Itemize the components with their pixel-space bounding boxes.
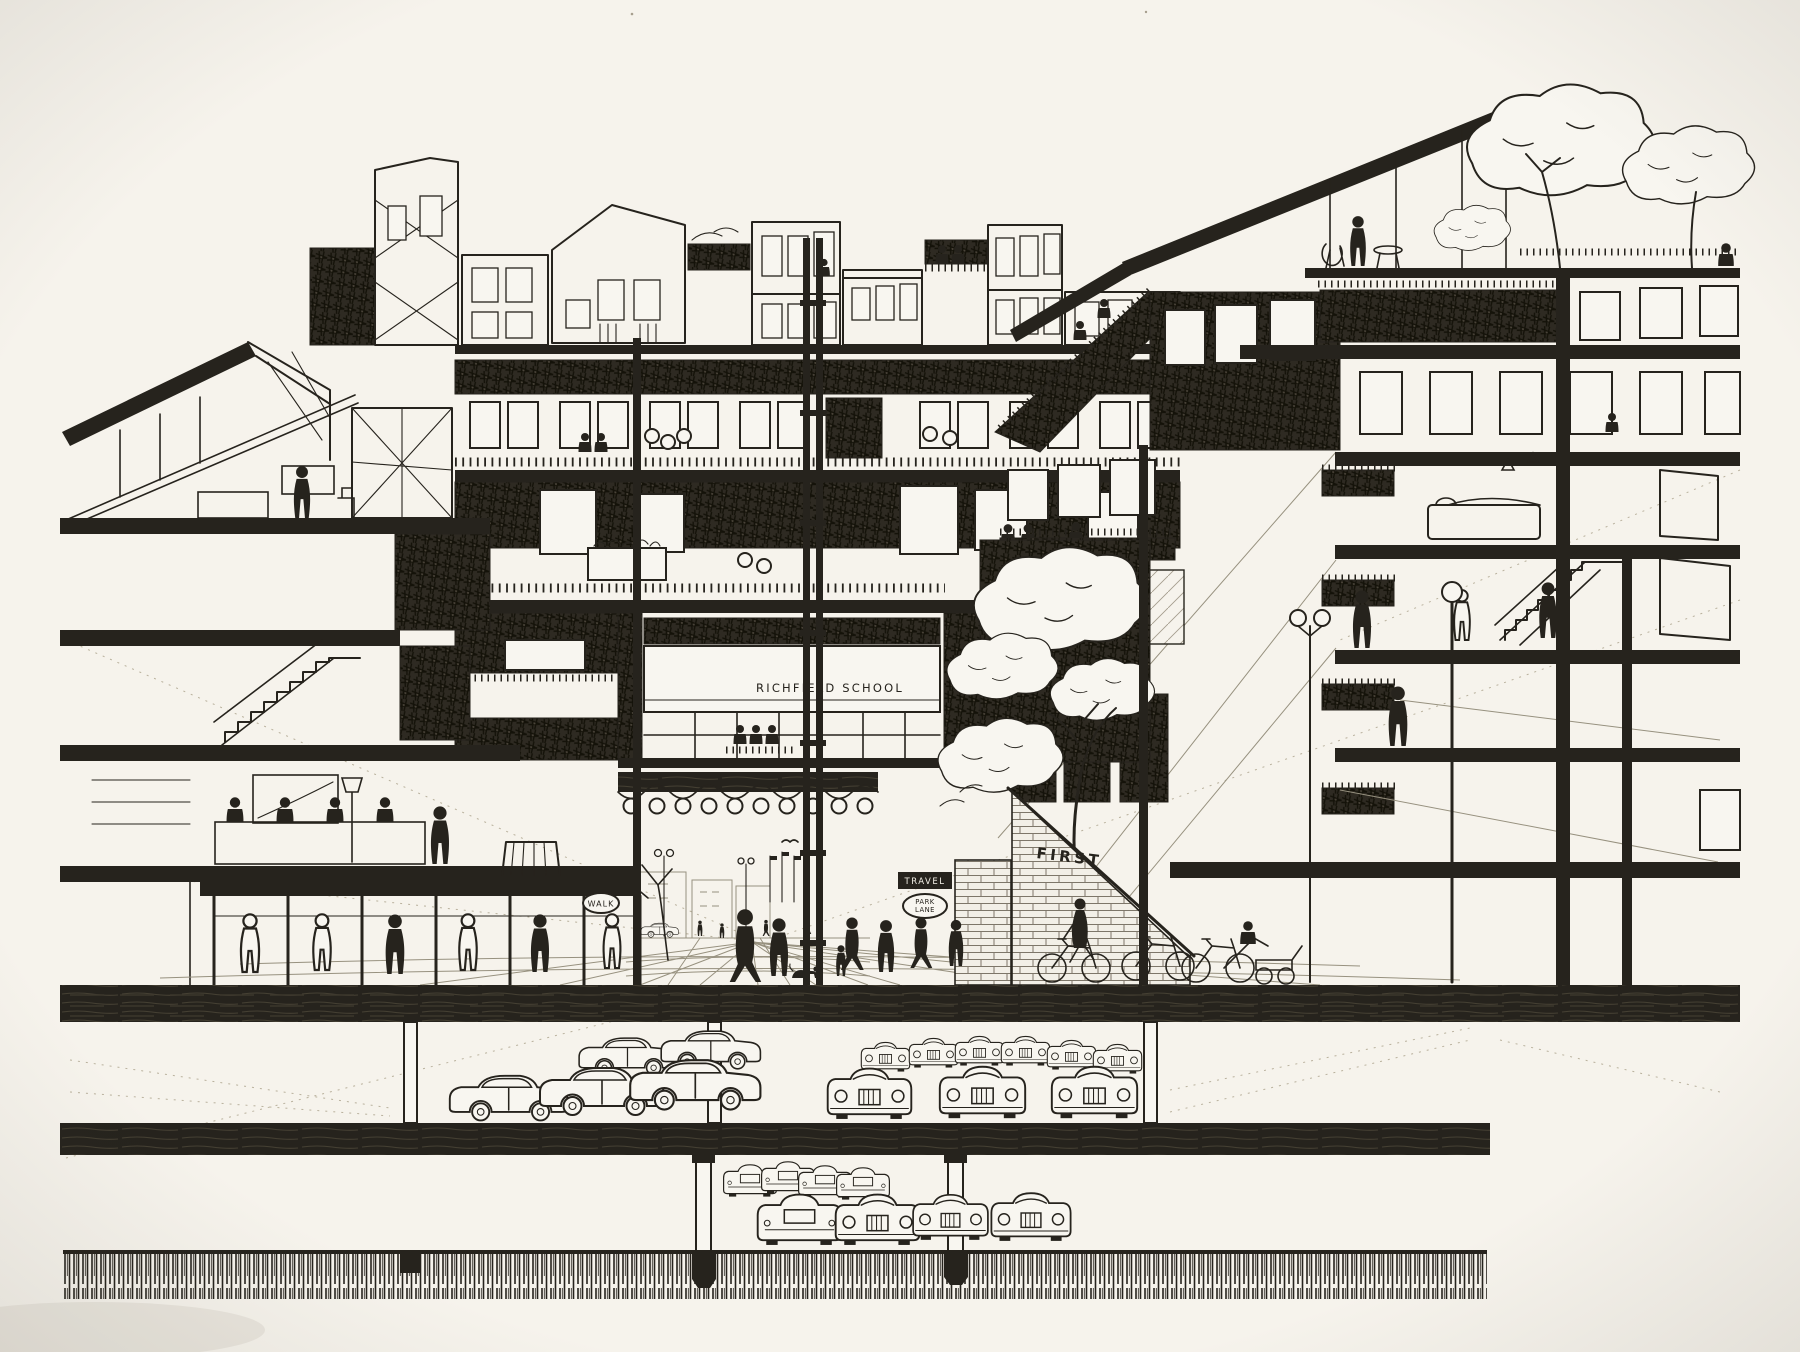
photographed-drawing-page: RICHFIELD SCHOOL (0, 0, 1800, 1352)
photo-vignette (0, 0, 1800, 1352)
sectional-perspective-drawing: RICHFIELD SCHOOL (0, 0, 1800, 1352)
